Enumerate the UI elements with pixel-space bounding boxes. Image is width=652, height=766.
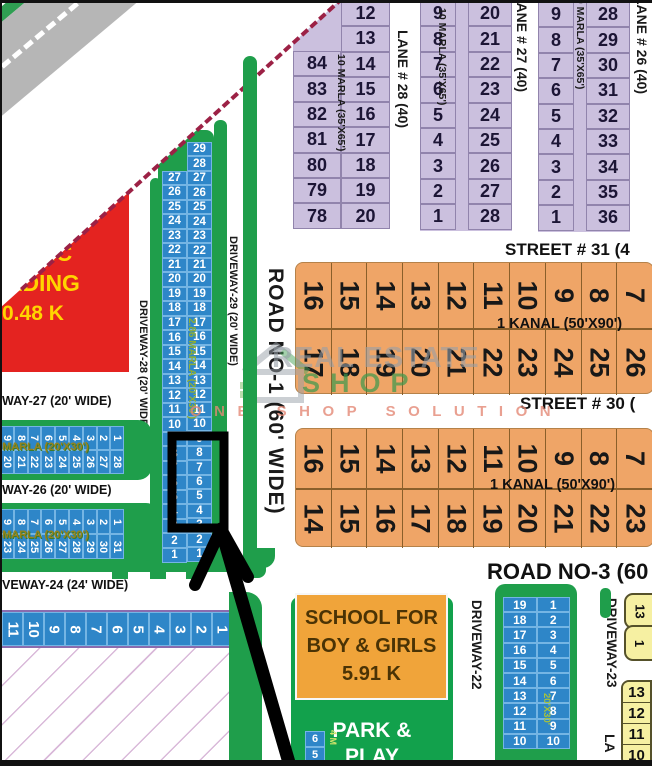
arrow-shaft <box>221 529 290 766</box>
plot-map-canvas: 84838281807978 121314151617181920 10 MAR… <box>0 0 652 766</box>
arrow-barb-left <box>195 529 221 585</box>
highlight-rectangle <box>172 436 224 528</box>
frame-border-left <box>0 0 2 766</box>
frame-border-bottom <box>0 760 652 766</box>
frame-border-top <box>0 0 652 3</box>
annotation-overlay <box>0 0 652 766</box>
